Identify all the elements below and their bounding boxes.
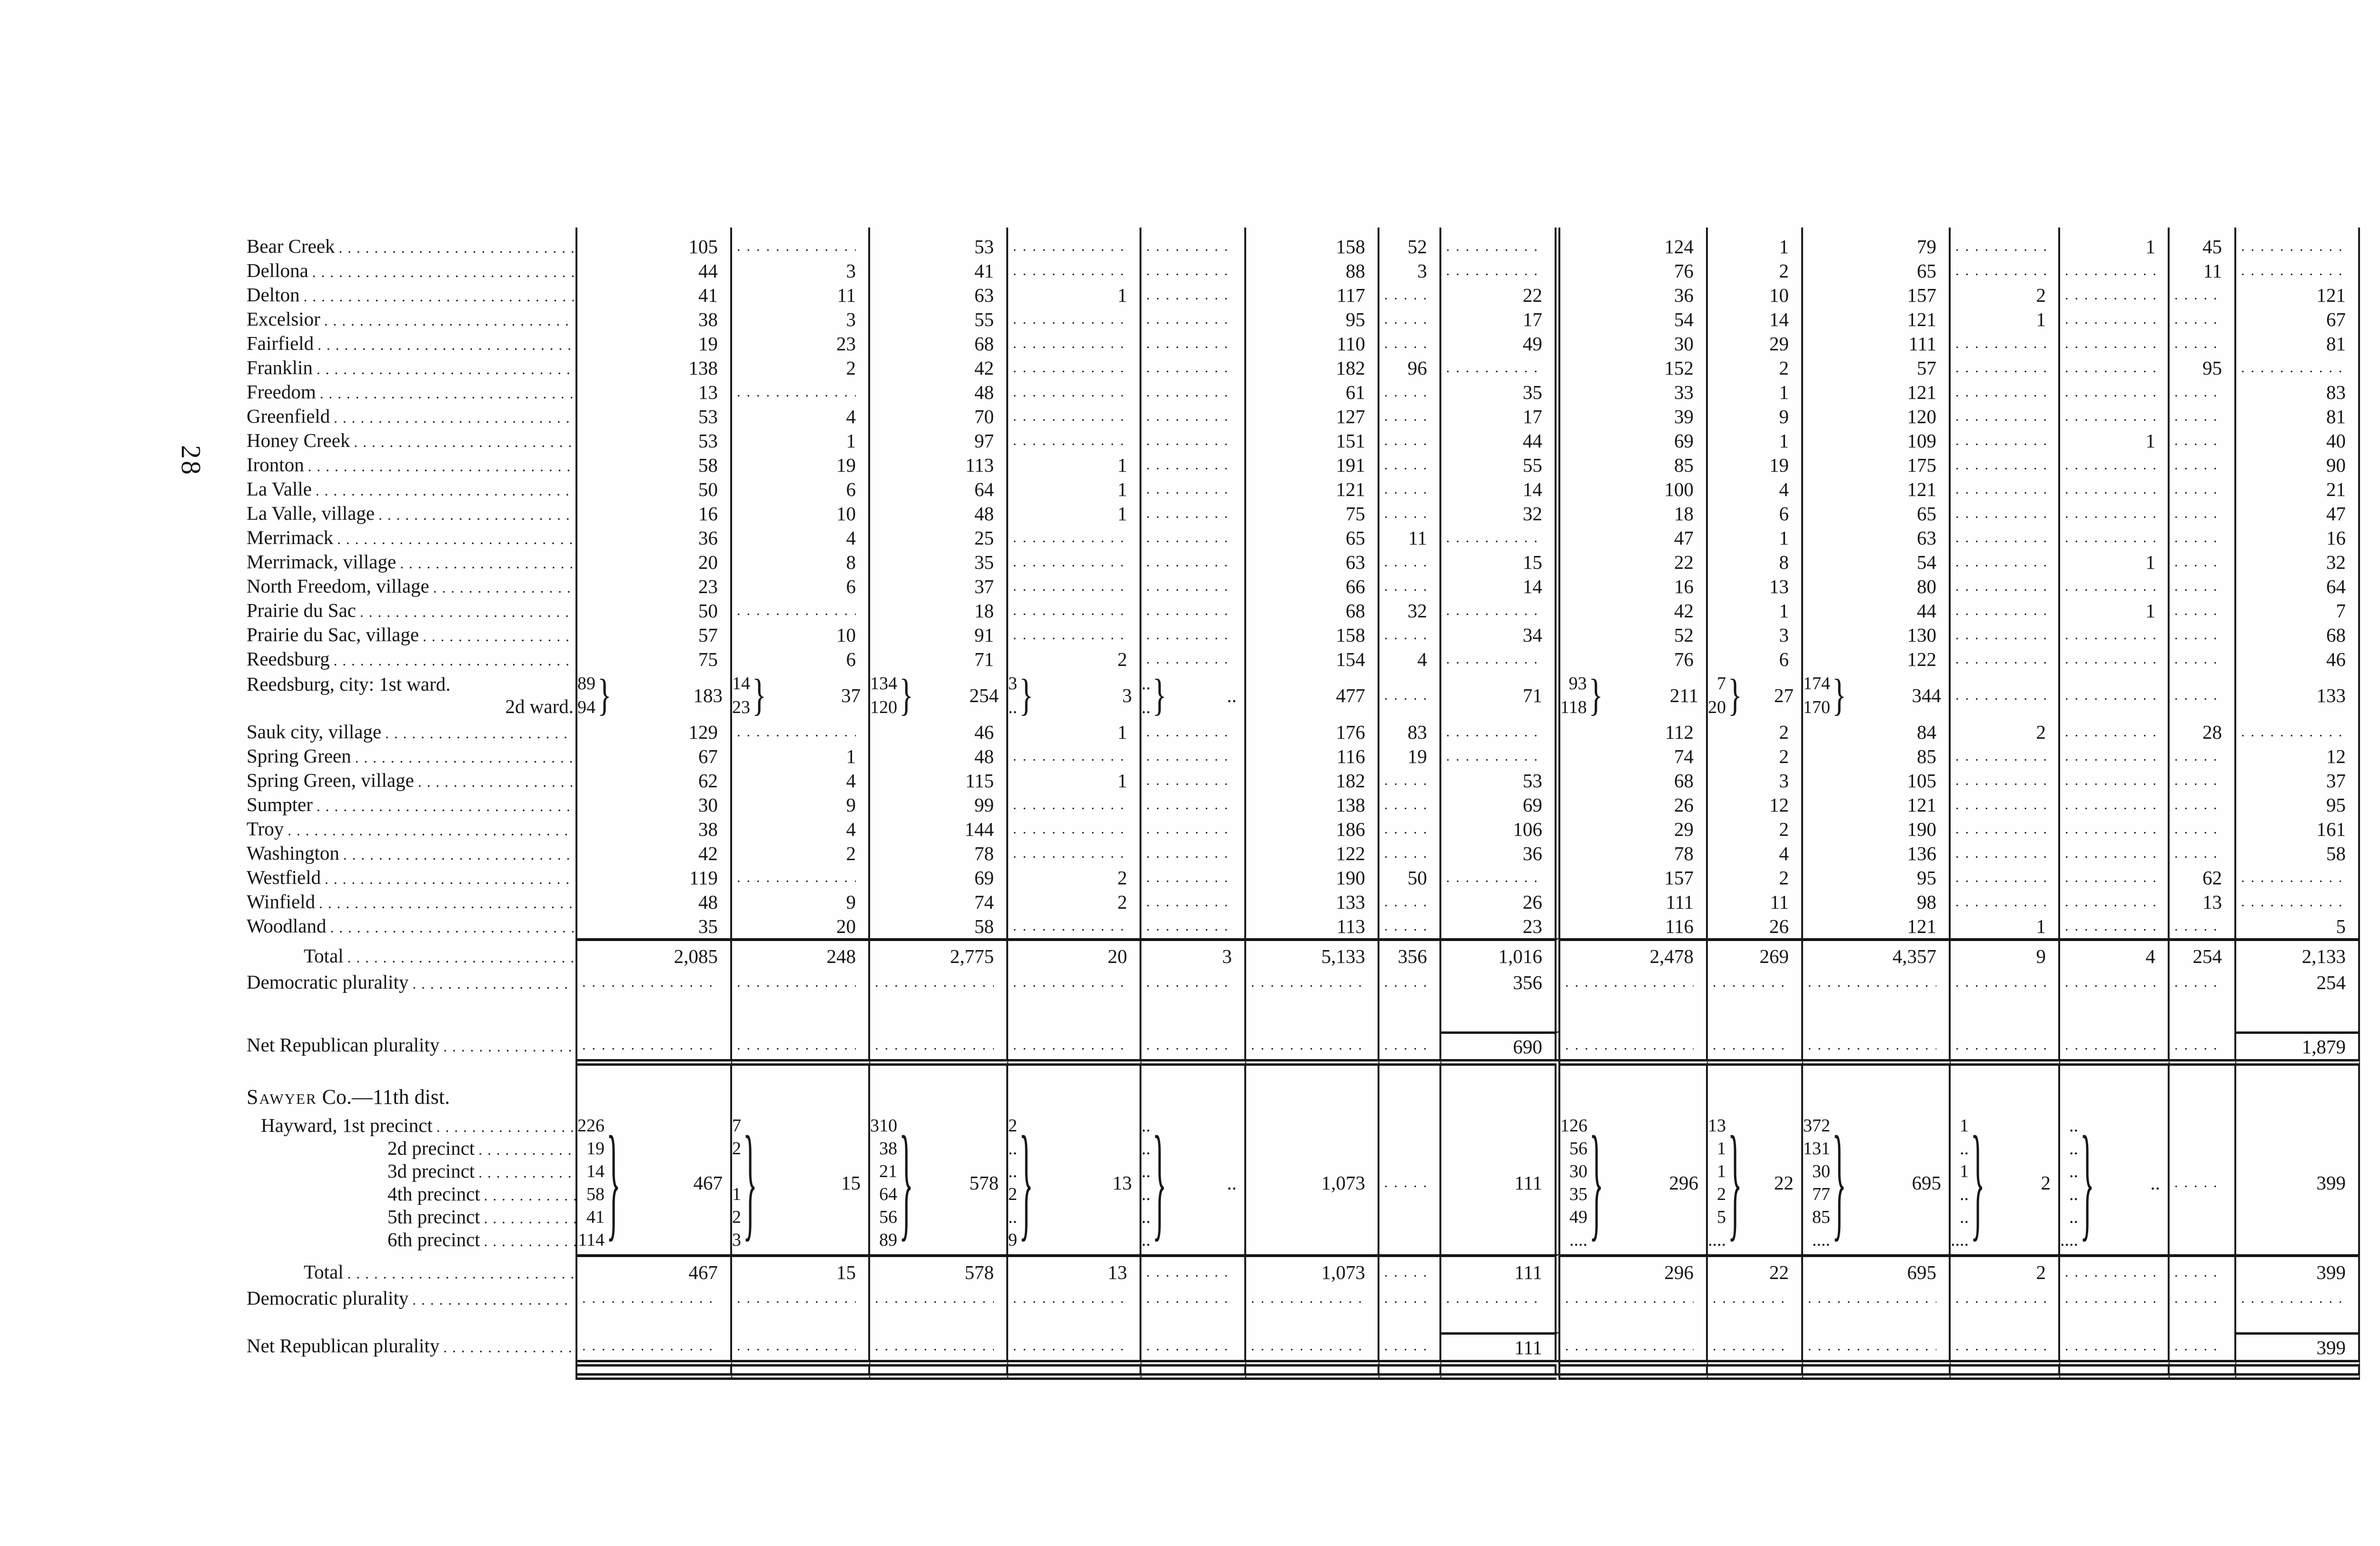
table-cell: ................ — [1008, 914, 1141, 938]
table-cell: ................ — [2170, 477, 2236, 501]
table-cell: 4,357 — [1803, 943, 1951, 970]
cell-value: 4 — [1418, 648, 1428, 671]
table-cell — [870, 1067, 1008, 1083]
cell-value: 3 — [1779, 769, 1789, 792]
table-cell — [2170, 1083, 2236, 1111]
cell-value: 111 — [1666, 891, 1694, 913]
cell-value: 191 — [1336, 454, 1366, 476]
table-cell — [1141, 938, 1246, 943]
table-cell — [1141, 1360, 1246, 1368]
cell-value: 19 — [698, 332, 718, 355]
table-cell: 9 — [732, 890, 870, 914]
cell-value: 2 — [2036, 721, 2046, 743]
table-cell: 1 — [1008, 768, 1141, 793]
table-cell — [1951, 1373, 2060, 1380]
table-cell — [1560, 228, 1708, 234]
table-cell — [732, 995, 870, 1031]
cell-value: 29 — [1674, 818, 1694, 841]
empty-cell-dots: ................ — [2060, 773, 2155, 788]
cell-value: 1,879 — [2302, 1035, 2346, 1058]
empty-cell-dots: ................ — [1379, 822, 1427, 836]
table-cell: ................ — [1951, 598, 2060, 623]
table-cell: 110 — [1246, 331, 1379, 356]
cell-value: 296 — [1606, 1171, 1698, 1194]
cell-value: 15 — [759, 1171, 861, 1194]
cell-value: 2,085 — [674, 945, 718, 968]
table-cell: 14 — [1441, 574, 1560, 598]
empty-cell-dots: ................ — [1379, 975, 1427, 990]
table-cell — [1560, 1083, 1708, 1111]
table-cell: ................ — [1008, 258, 1141, 283]
table-cell — [2060, 1083, 2170, 1111]
table-cell: 182 — [1246, 356, 1379, 380]
cell-value: 65 — [1346, 526, 1365, 549]
table-cell: 2 — [1708, 258, 1803, 283]
empty-cell-dots: ................ — [1141, 895, 1232, 909]
cell-value: 19 — [1769, 454, 1789, 476]
table-cell: ................ — [870, 1286, 1008, 1311]
empty-cell-dots: ................ — [1246, 975, 1365, 990]
table-cell: 74 — [1560, 744, 1708, 768]
table-cell: ................ — [1379, 914, 1441, 938]
empty-cell-dots: ................ — [1379, 482, 1427, 496]
label-text: Woodland — [247, 915, 327, 937]
table-cell — [1803, 1311, 1951, 1332]
cell-value: 49 — [1523, 332, 1542, 355]
sub-values: 131125.... — [1708, 1114, 1726, 1251]
table-cell — [1560, 1059, 1708, 1067]
table-row: Franklin................................… — [237, 356, 2360, 380]
table-cell: 121 — [1803, 307, 1951, 331]
table-cell: ................ — [1379, 890, 1441, 914]
row-label: Net Republican plurality................… — [237, 1031, 577, 1059]
cell-value: 19 — [1408, 745, 1427, 768]
row-label: Ironton.................................… — [237, 453, 577, 477]
row-label: Prairie du Sac..........................… — [237, 598, 577, 623]
table-cell: 2 — [1708, 817, 1803, 841]
table-cell: ................ — [2060, 865, 2170, 890]
table-cell — [870, 1059, 1008, 1067]
cell-value: 63 — [974, 284, 994, 307]
table-cell: 133 — [1246, 890, 1379, 914]
table-cell — [1008, 938, 1141, 943]
table-cell: 80 — [1803, 574, 1951, 598]
table-cell — [1441, 1311, 1560, 1332]
table-cell: 72 123}15 — [732, 1111, 870, 1254]
table-cell: ................ — [1008, 793, 1141, 817]
dotted-leader: ........................................… — [480, 1187, 577, 1204]
dotted-leader: ........................................… — [313, 798, 574, 815]
cell-value: 9 — [2036, 945, 2046, 968]
dotted-leader: ........................................… — [480, 1210, 577, 1227]
table-cell: ................ — [2060, 1259, 2170, 1286]
cell-value: 2 — [1779, 259, 1789, 282]
table-cell — [870, 995, 1008, 1031]
table-cell — [2170, 228, 2236, 234]
table-cell — [732, 1311, 870, 1332]
table-row: North Freedom, village..................… — [237, 574, 2360, 598]
table-cell — [1379, 1067, 1441, 1083]
table-cell: ................ — [2170, 793, 2236, 817]
table-cell — [2236, 1311, 2360, 1332]
cell-value: 40 — [2326, 429, 2346, 452]
cell-value: 695 — [1907, 1261, 1937, 1284]
table-cell: 19 — [577, 331, 732, 356]
table-cell: ................ — [2060, 1332, 2170, 1360]
table-cell: ................ — [1141, 865, 1246, 890]
table-cell: 54 — [1560, 307, 1708, 331]
cell-value: 17 — [1523, 405, 1542, 428]
table-cell: ................ — [1379, 1031, 1441, 1059]
table-cell: 57 — [577, 623, 732, 647]
cell-value: 10 — [836, 624, 856, 646]
precinct-label: 5th precinct — [387, 1206, 480, 1228]
brace-icon: } — [1589, 1119, 1604, 1247]
table-cell: ................ — [2060, 501, 2170, 525]
table-cell: ................ — [2236, 865, 2360, 890]
table-cell: ................ — [1951, 1332, 2060, 1360]
cell-value: 1 — [846, 429, 856, 452]
empty-cell-dots: ................ — [1951, 798, 2046, 812]
cell-value: 68 — [2326, 624, 2346, 646]
brace-icon: } — [1152, 1119, 1167, 1247]
table-cell — [1560, 1368, 1708, 1373]
table-cell: ................ — [870, 1332, 1008, 1360]
dotted-leader: ........................................… — [321, 871, 574, 888]
table-cell: ................ — [732, 380, 870, 404]
empty-cell-dots: ................ — [1008, 604, 1127, 618]
empty-cell-dots: ................ — [1803, 1339, 1936, 1353]
table-cell: ................ — [2170, 817, 2236, 841]
table-cell: 248 — [732, 943, 870, 970]
label-text: Ironton — [247, 454, 304, 476]
empty-cell-dots: ................ — [1708, 975, 1789, 990]
empty-cell-dots: ................ — [1951, 458, 2046, 472]
cell-value: 75 — [698, 648, 718, 671]
table-cell: ................ — [1379, 574, 1441, 598]
table-cell: ................ — [2060, 793, 2170, 817]
cell-value: 91 — [974, 624, 994, 646]
sub-values: 372131307785.... — [1803, 1114, 1830, 1251]
empty-cell-dots: ................ — [1560, 975, 1694, 990]
empty-cell-dots: ................ — [1379, 312, 1427, 327]
table-cell: ................ — [732, 970, 870, 995]
table-cell: ................ — [1141, 501, 1246, 525]
cell-value: 29 — [1769, 332, 1789, 355]
cell-value: 42 — [1674, 599, 1694, 622]
cell-value: 2 — [2036, 1261, 2046, 1284]
cell-value: 96 — [1408, 357, 1427, 379]
empty-cell-dots: ................ — [1141, 482, 1232, 496]
label-text: Bear Creek — [247, 235, 335, 258]
table-cell: 695 — [1803, 1259, 1951, 1286]
table-cell: ................ — [1141, 404, 1246, 428]
table-cell: 1 — [732, 744, 870, 768]
cell-value: 161 — [2317, 818, 2346, 841]
table-cell: 1 — [1708, 598, 1803, 623]
table-cell: ................ — [2060, 671, 2170, 720]
cell-value: 111 — [1515, 1171, 1542, 1194]
cell-value: 296 — [1665, 1261, 1694, 1284]
cell-value: 47 — [2326, 502, 2346, 525]
table-cell: 3 — [1708, 768, 1803, 793]
empty-cell-dots: ................ — [2060, 895, 2155, 909]
empty-cell-dots: ................ — [2170, 1339, 2222, 1353]
table-cell: 58 — [577, 453, 732, 477]
cell-value: 690 — [1513, 1035, 1543, 1058]
table-cell: 3 — [732, 307, 870, 331]
cell-value: 22 — [1769, 1261, 1789, 1284]
cell-value: 41 — [698, 284, 718, 307]
table-cell: ................ — [1708, 1031, 1803, 1059]
empty-cell-dots: ................ — [1141, 409, 1232, 424]
table-cell: ................ — [1008, 574, 1141, 598]
table-cell: 124 — [1560, 234, 1708, 258]
sub-values: 22619145841114 — [577, 1114, 605, 1251]
cell-value: 78 — [1674, 842, 1694, 865]
table-cell: 720}27 — [1708, 671, 1803, 720]
table-cell: 16 — [2236, 525, 2360, 550]
cell-value: 7 — [2336, 599, 2346, 622]
table-cell: 133 — [2236, 671, 2360, 720]
label-text: Excelsior — [247, 308, 320, 330]
table-cell — [577, 1083, 732, 1111]
table-row: Woodland................................… — [237, 914, 2360, 938]
cell-value: 4 — [2146, 945, 2156, 968]
cell-value: 11 — [2203, 259, 2222, 282]
cell-value: 65 — [1917, 502, 1936, 525]
cell-value: 176 — [1336, 721, 1366, 743]
cell-value: 19 — [836, 454, 856, 476]
table-cell: ................ — [2170, 307, 2236, 331]
empty-cell-dots: ................ — [2170, 822, 2222, 836]
table-row: Delton..................................… — [237, 283, 2360, 307]
table-cell: ................ — [1951, 550, 2060, 574]
label-text: Delton — [247, 284, 300, 306]
dotted-leader: ........................................… — [308, 264, 574, 281]
dotted-leader: ........................................… — [330, 409, 574, 426]
empty-cell-dots: ................ — [2060, 506, 2155, 521]
empty-cell-dots: ................ — [1951, 846, 2046, 861]
table-cell: ................ — [1441, 525, 1560, 550]
table-cell: 186 — [1246, 817, 1379, 841]
cell-value: 84 — [1917, 721, 1936, 743]
dotted-leader: ........................................… — [475, 1164, 577, 1181]
table-cell: ................ — [2170, 841, 2236, 865]
dotted-leader: ........................................… — [396, 555, 574, 572]
empty-cell-dots: ................ — [1708, 1291, 1789, 1306]
table-cell — [870, 1083, 1008, 1111]
table-cell — [1246, 1360, 1379, 1368]
table-cell: 90 — [2236, 453, 2360, 477]
cell-value: 254 — [2317, 971, 2346, 994]
table-cell: ................ — [1951, 623, 2060, 647]
table-cell — [2060, 1311, 2170, 1332]
table-cell: 174170}344 — [1803, 671, 1951, 720]
table-cell: ................ — [2236, 720, 2360, 744]
empty-cell-dots: ................ — [1008, 1339, 1127, 1353]
table-cell: 19 — [1379, 744, 1441, 768]
sub-values: ............ — [1141, 1114, 1150, 1251]
cell-value: 83 — [2326, 381, 2346, 404]
table-cell: 68 — [870, 331, 1008, 356]
table-cell: ................ — [2170, 970, 2236, 995]
table-cell — [1008, 1254, 1141, 1259]
label-text: Reedsburg — [247, 648, 330, 670]
cell-value: 3 — [846, 308, 856, 331]
precinct-label: 6th precinct — [387, 1229, 480, 1251]
row-label: Winfield................................… — [237, 890, 577, 914]
table-cell: 1 — [1708, 525, 1803, 550]
cell-value: 13 — [1769, 575, 1789, 598]
table-cell: 3..}3 — [1008, 671, 1141, 720]
table-cell — [1803, 1360, 1951, 1368]
table-cell — [1141, 1067, 1246, 1083]
cell-value: 1,016 — [1498, 945, 1542, 968]
table-cell: ................ — [1951, 574, 2060, 598]
table-cell — [732, 1083, 870, 1111]
table-cell: ................ — [1951, 817, 2060, 841]
dotted-leader: ........................................… — [333, 531, 574, 548]
table-cell: 129 — [577, 720, 732, 744]
cell-value: 20 — [836, 915, 856, 938]
table-cell — [1803, 995, 1951, 1031]
table-cell: 74 — [870, 890, 1008, 914]
table-cell: 36 — [1441, 841, 1560, 865]
cell-value: 12 — [2326, 745, 2346, 768]
empty-cell-dots: ................ — [870, 975, 994, 990]
table-cell: ................ — [1379, 331, 1441, 356]
cell-value: 13 — [698, 381, 718, 404]
table-cell: ................ — [1560, 970, 1708, 995]
cell-value: 10 — [836, 502, 856, 525]
dotted-leader: ........................................… — [300, 288, 574, 305]
brace-icon: } — [743, 1119, 757, 1247]
row-label — [237, 1373, 577, 1380]
table-cell: 4 — [732, 768, 870, 793]
empty-cell-dots: ................ — [1246, 1038, 1365, 1052]
table-cell — [577, 1373, 732, 1380]
table-row: Washington..............................… — [237, 841, 2360, 865]
table-cell: ................ — [1141, 623, 1246, 647]
empty-cell-dots: ................ — [2170, 975, 2222, 990]
empty-cell-dots: ................ — [577, 1038, 718, 1052]
table-cell: 11 — [732, 283, 870, 307]
empty-cell-dots: ................ — [1379, 773, 1427, 788]
cell-value: 1 — [1779, 599, 1789, 622]
table-row: Prairie du Sac..........................… — [237, 598, 2360, 623]
cell-value: 106 — [1513, 818, 1543, 841]
table-cell — [1008, 1083, 1141, 1111]
table-cell: ................ — [1008, 331, 1141, 356]
table-row: Net Republican plurality................… — [237, 1332, 2360, 1360]
empty-cell-dots: ................ — [1246, 1291, 1365, 1306]
cell-value: 46 — [974, 721, 994, 743]
cell-value: 1 — [1118, 502, 1128, 525]
table-cell — [1141, 228, 1246, 234]
empty-cell-dots: ................ — [732, 725, 856, 739]
table-cell: ................ — [2060, 331, 2170, 356]
election-statistics-table: Bear Creek..............................… — [237, 228, 2360, 1380]
empty-cell-dots: ................ — [2236, 871, 2346, 885]
table-cell: 1,073 — [1246, 1111, 1379, 1254]
cell-value: 88 — [1346, 259, 1365, 282]
table-row: La Valle................................… — [237, 477, 2360, 501]
dotted-leader: ........................................… — [429, 579, 574, 596]
table-cell: 117 — [1246, 283, 1379, 307]
table-cell — [1141, 1083, 1246, 1111]
table-cell: ................ — [1246, 1286, 1379, 1311]
table-cell: ................ — [1379, 970, 1441, 995]
table-cell: 4 — [1379, 647, 1441, 671]
table-cell: ................ — [1441, 865, 1560, 890]
dotted-leader: ........................................… — [316, 385, 574, 402]
dotted-leader: ........................................… — [350, 434, 574, 451]
table-cell: ................ — [2170, 501, 2236, 525]
label-text: Prairie du Sac — [247, 599, 356, 622]
table-cell — [2170, 1373, 2236, 1380]
label-text: La Valle — [247, 478, 312, 500]
table-cell: 13 — [2170, 890, 2236, 914]
table-cell: 12 — [2236, 744, 2360, 768]
table-cell: ................ — [1379, 283, 1441, 307]
table-cell: 2 — [732, 356, 870, 380]
table-cell: 2,478 — [1560, 943, 1708, 970]
table-cell: 95 — [2170, 356, 2236, 380]
table-cell: 121 — [1803, 914, 1951, 938]
table-cell: 111 — [1441, 1111, 1560, 1254]
table-cell: 121 — [1803, 380, 1951, 404]
table-row: Reedsburg, city: 1st ward.2d ward.8994}1… — [237, 671, 2360, 720]
cell-value: 248 — [827, 945, 856, 968]
table-cell: 6 — [732, 647, 870, 671]
table-row: Democratic plurality....................… — [237, 970, 2360, 995]
table-cell — [1560, 1360, 1708, 1368]
label-text: Sumpter — [247, 793, 313, 816]
cell-value: 48 — [974, 381, 994, 404]
cell-value: 69 — [1674, 429, 1694, 452]
table-cell: 13 — [577, 380, 732, 404]
table-cell — [1141, 1254, 1246, 1259]
dotted-leader: ........................................… — [330, 652, 574, 669]
brace-icon: } — [1832, 1119, 1846, 1247]
table-cell — [1379, 1360, 1441, 1368]
table-cell: ................ — [1951, 671, 2060, 720]
label-text: Spring Green — [247, 745, 351, 767]
table-cell: 14 — [1708, 307, 1803, 331]
table-cell: 26 — [1560, 793, 1708, 817]
empty-cell-dots: ................ — [2060, 919, 2155, 933]
table-cell: 12656303549....}296 — [1560, 1111, 1708, 1254]
table-cell: 76 — [1560, 258, 1708, 283]
row-label — [237, 1360, 577, 1368]
table-cell: ................ — [1560, 1286, 1708, 1311]
empty-cell-dots: ................ — [1803, 1038, 1936, 1052]
table-cell: ................ — [1141, 331, 1246, 356]
empty-cell-dots: ................ — [2170, 798, 2222, 812]
table-row: Sauk city, village......................… — [237, 720, 2360, 744]
sub-values: 174170 — [1803, 672, 1830, 719]
table-cell: 106 — [1441, 817, 1560, 841]
table-cell: 269 — [1708, 943, 1803, 970]
cell-value: .. — [1169, 684, 1237, 707]
table-cell — [1951, 1067, 2060, 1083]
cell-value: 1 — [1118, 284, 1128, 307]
table-cell: ................ — [1141, 428, 1246, 453]
table-row — [237, 1311, 2360, 1332]
cell-value: 1,073 — [1321, 1261, 1365, 1284]
table-cell — [1246, 1067, 1379, 1083]
